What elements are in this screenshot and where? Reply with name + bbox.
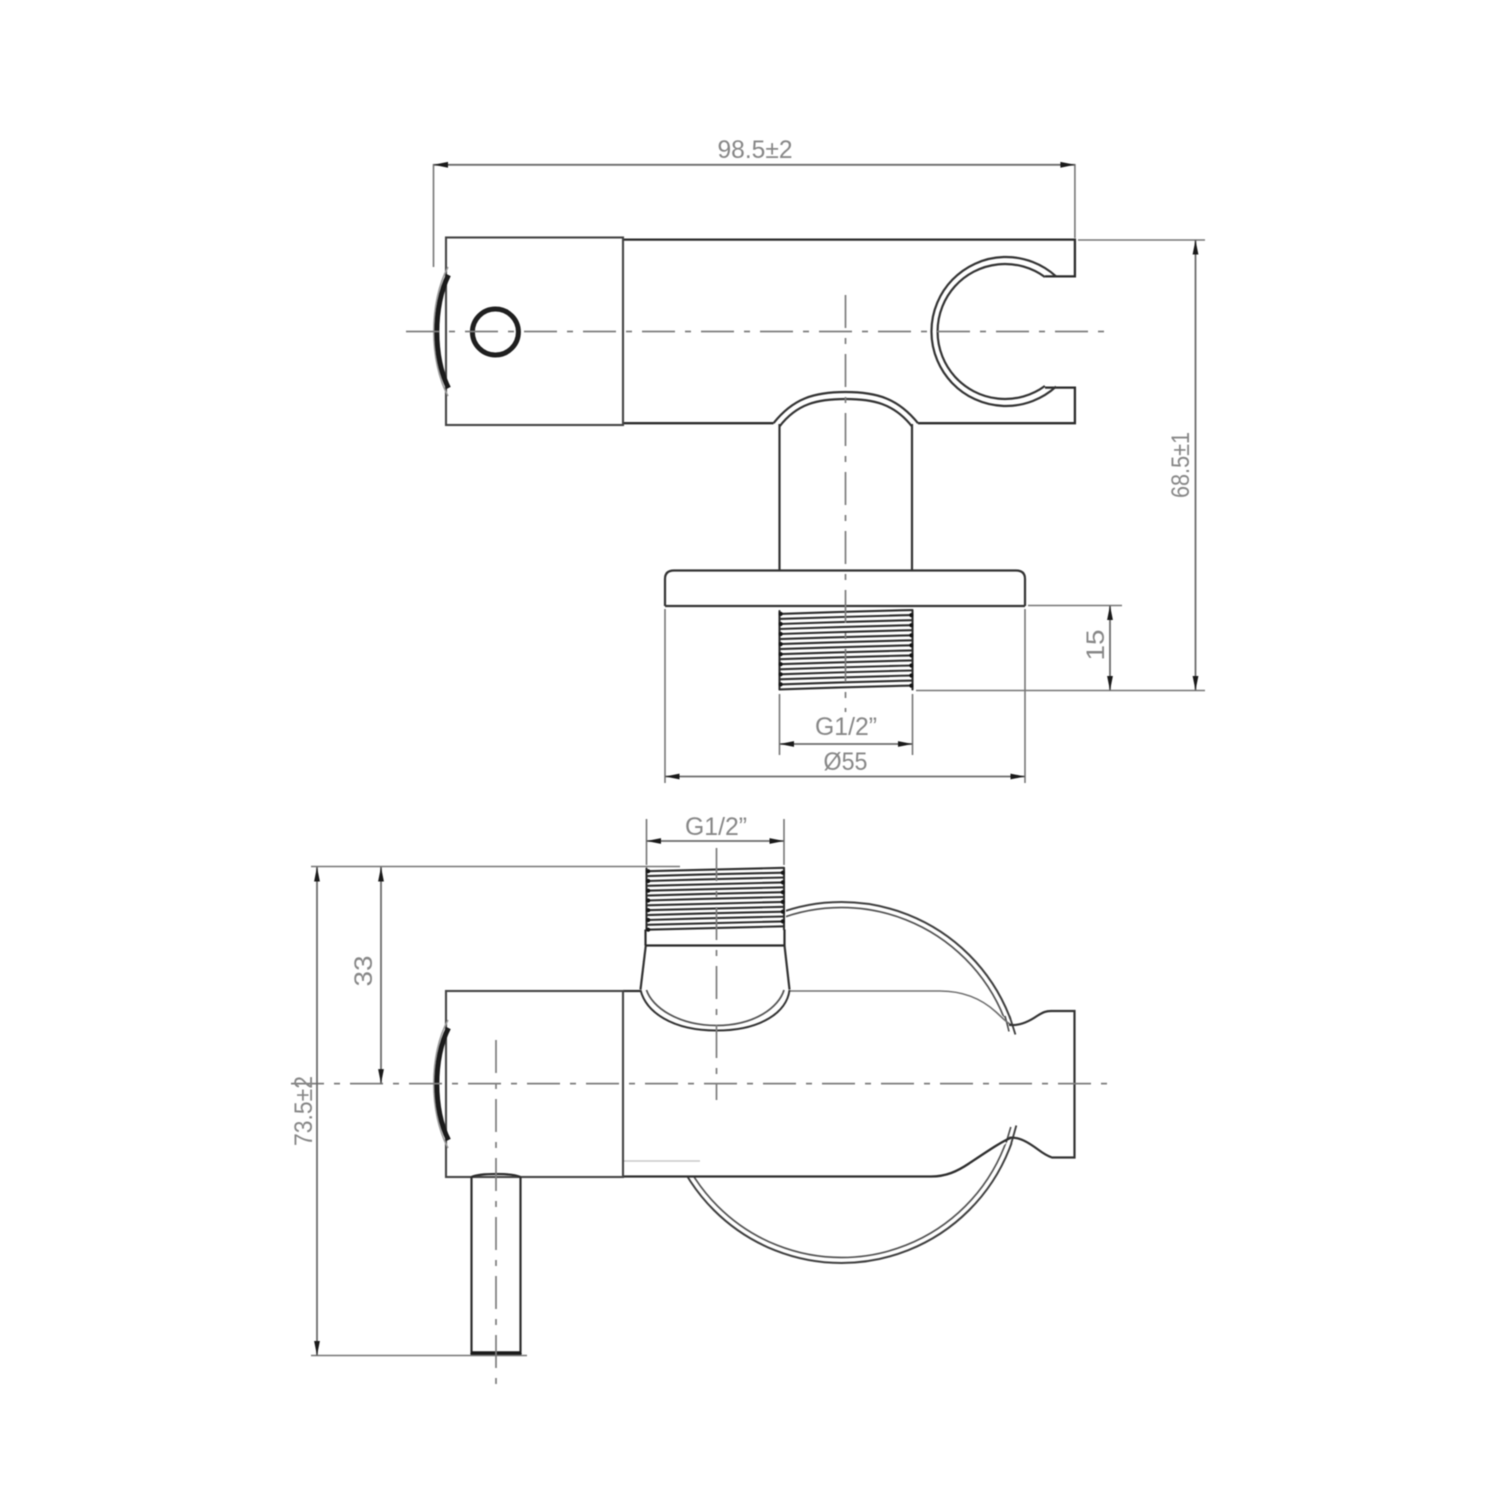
svg-text:98.5±2: 98.5±2 [718,136,793,164]
svg-text:73.5±2: 73.5±2 [290,1076,318,1146]
svg-text:15: 15 [1082,630,1110,661]
svg-text:68.5±1: 68.5±1 [1167,432,1195,498]
svg-text:Ø55: Ø55 [824,748,868,776]
svg-text:33: 33 [350,956,378,987]
svg-text:G1/2”: G1/2” [685,813,747,841]
svg-text:G1/2”: G1/2” [815,713,877,741]
